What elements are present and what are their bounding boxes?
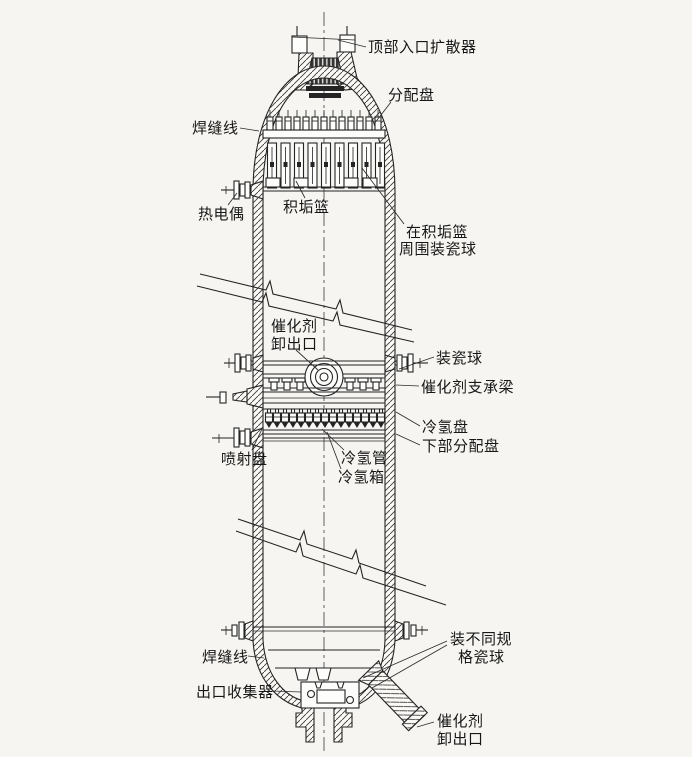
label-balls-around-basket-2: 周围装瓷球 bbox=[399, 241, 477, 258]
label-outlet-collector: 出口收集器 bbox=[196, 684, 274, 701]
label-cold-hydrogen-box: 冷氢箱 bbox=[338, 469, 385, 486]
label-graded-ceramic-balls-1: 装不同规 bbox=[450, 631, 512, 648]
top-distribution-plate bbox=[306, 86, 344, 98]
lower-distribution-tray bbox=[251, 430, 385, 441]
label-scale-basket: 积垢篮 bbox=[283, 198, 330, 216]
outlet-collector-box bbox=[301, 682, 359, 708]
label-catalyst-unload-bottom-2: 卸出口 bbox=[437, 731, 484, 748]
bottom-right-nozzle bbox=[395, 621, 428, 641]
scanned-diagram-page: 顶部入口扩散器 分配盘 焊缝线 热电偶 积垢篮 在积垢篮 周围装瓷球 催化剂 卸… bbox=[0, 0, 692, 757]
label-load-ceramic-balls: 装瓷球 bbox=[436, 350, 483, 367]
bottom-through-rod bbox=[221, 621, 428, 641]
label-catalyst-unload-bottom-1: 催化剂 bbox=[437, 713, 484, 730]
label-catalyst-unload-mid-2: 卸出口 bbox=[271, 336, 318, 353]
label-catalyst-support-beam: 催化剂支承梁 bbox=[421, 379, 514, 396]
lower-left-nozzle bbox=[212, 428, 263, 448]
label-catalyst-unload-mid-1: 催化剂 bbox=[271, 318, 318, 335]
reactor-cross-section-diagram: 顶部入口扩散器 分配盘 焊缝线 热电偶 积垢篮 在积垢篮 周围装瓷球 催化剂 卸… bbox=[0, 0, 692, 757]
thermocouple-nozzle bbox=[221, 181, 263, 199]
label-thermocouple: 热电偶 bbox=[198, 206, 245, 223]
label-distribution-tray: 分配盘 bbox=[388, 86, 435, 104]
upper-distributor-row bbox=[263, 110, 385, 138]
label-spray-tray: 喷射盘 bbox=[221, 450, 268, 468]
label-top-inlet-diffuser: 顶部入口扩散器 bbox=[368, 39, 477, 56]
left-discharge-nozzle bbox=[206, 385, 263, 408]
label-graded-ceramic-balls-2: 格瓷球 bbox=[458, 649, 505, 666]
label-cold-hydrogen-tray: 冷氢盘 bbox=[422, 418, 469, 436]
label-weld-line-bottom: 焊缝线 bbox=[202, 649, 249, 666]
label-cold-hydrogen-pipe: 冷氢管 bbox=[341, 450, 388, 467]
label-balls-around-basket-1: 在积垢篮 bbox=[406, 223, 468, 241]
bottom-left-nozzle bbox=[221, 621, 253, 641]
mid-left-nozzle bbox=[224, 354, 263, 372]
label-weld-line-top: 焊缝线 bbox=[192, 120, 239, 137]
break-lines-lower bbox=[236, 519, 446, 605]
mid-right-nozzle bbox=[385, 354, 428, 372]
label-lower-distribution-tray: 下部分配盘 bbox=[422, 437, 500, 455]
